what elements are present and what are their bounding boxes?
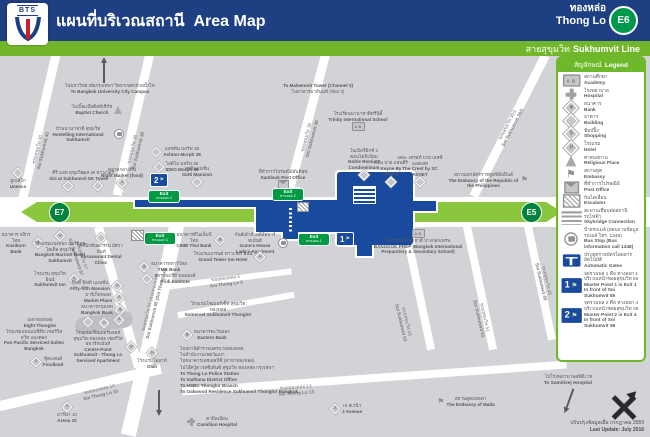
place-name-th: โรงแรมแพนแปซิฟิก เซอร์วิส สวีท แบงคอก [2,329,66,340]
legend-item-post: ที่ทำการไปรษณีย์Post Office [559,181,643,194]
place-name-en: Arena 10 [57,418,77,424]
exit-badge-3: Exitทางออก 3 [144,232,176,245]
building-icon [565,115,576,126]
legend-item-religious: ศาสนสถานReligious Place [559,154,643,167]
building-icon [94,182,102,190]
building-icon [387,177,395,185]
shopping-icon [115,316,123,324]
place-text: ที่ทำการไปรษณีย์สันติสุขSantisuk Post Of… [258,169,307,180]
muster-icon: 1 [560,277,583,295]
bank-icon [183,330,191,338]
bank-icon [565,102,576,113]
map-place: โรงแรมโซเมอร์เซ็ท สุขุมวิท ทองหล่อSomers… [183,301,253,318]
page-title-en: Area Map [193,13,265,30]
legend-item-bank: ธนาคารBank [559,101,643,114]
legend-label-en: Automatic Gates [584,264,641,270]
arrow-down-icon [156,390,162,416]
place-text: สุทธิแมนชั่นSutti Mansion [182,166,212,177]
exit-number: ทางออก 1 [299,240,329,244]
legend-item-building: อาคารBuilding [559,114,643,127]
place-name-en: TMB Bank [151,267,187,273]
line-name-th: สายสุขุมวิท [526,44,570,54]
place-name-en: Pridi Institute [154,279,195,285]
legend-label-en: Muster Point 1 is Exit 1 In front of Soi… [584,283,641,300]
place-name-th: ที่ทำการไปรษณีย์สันติสุข [258,169,307,175]
place-text: เอท ทองหล่อEight Thonglor [24,317,57,328]
legend-label-en: Academy [584,81,608,87]
place-name-th: คลินิกทันตกรรม อัศวานันท์ [76,243,126,254]
arrow-down-icon [562,388,577,414]
street-label: ซอยสุขุมวิท 30/1Soi Sukhumvit 30/1 [495,105,524,147]
place-name-en: Pan Pacific Serviced Suites Bangkok [2,340,66,351]
legend-icon-cell [558,182,585,194]
map-place: บ้านนานาชาติ สุขุมวิทHostelling Internat… [44,126,124,143]
place-name-en: Bangkok Bank [81,310,113,316]
last-update-th: ปรับปรุงข้อมูลเมื่อ กรกฎาคม 2559 [570,420,644,427]
exit-number: ทางออก 4 [149,197,179,201]
hotel-icon [56,232,64,240]
direction-en: To Oakwood Residence Sukhumvit Thonglor … [180,389,298,395]
place-text: To Maleenont Tower (Channel 3)ไปอาคารมาล… [283,83,353,94]
map-place: โรงแรมแพนแปซิฟิก เซอร์วิส สวีท แบงคอกPan… [2,329,66,351]
place-name-th: ธนาคารทหารไทย [151,261,187,267]
map-place: ไบเบิ้ลแบ๊พติสท์เชิร์ชBaptist Church [60,104,134,115]
place-text: สถานทูตมอลตาThe Embassy of Malta [446,396,494,407]
map-place: สถาบันปรีดี พนมยงค์Pridi Institute [140,273,198,284]
line-name: สายสุขุมวิทSukhumvit Line [526,42,640,56]
legend-icon-cell [558,195,585,209]
page-title-th: แผนที่บริเวณสถานี [56,13,185,30]
building-icon [360,171,368,179]
legend-item-shopping: ช้อปปิ้งShopping [559,128,643,141]
embassy-icon [566,169,576,180]
legend-item-escalator: บันไดเลื่อนEscalator [559,195,643,208]
building-icon [143,274,151,282]
place-name-en: The Embassy of Malta [446,402,494,408]
legend-text: ที่ทำการไปรษณีย์Post Office [584,182,620,193]
place-text: เอส เค ทาวเวอร์SK Tower [82,170,114,181]
map-place [84,317,92,327]
busstop-icon [278,238,288,248]
bank-icon [216,236,224,244]
map-place: เดอะ เครสท์ บาย เอสซี แอสเสทThe Crest by… [397,155,443,187]
place-name-th: สถาบันปรีดี พนมยงค์ [154,273,195,279]
map-place [100,318,108,328]
hospital-icon [187,418,195,426]
skybridge-icon [561,211,581,225]
map-place: สุทธิแมนชั่นSutti Mansion [171,166,223,187]
place-name-en: Sutti Mansion [182,172,212,178]
station-name-en: Thong Lo [556,15,606,28]
place-name-th: ธนาคาร กสิกรไทย [1,232,31,243]
map-place: โรงแรมโอลาห์Olah [131,348,173,369]
muster-icon: 2 [560,306,583,324]
place-name-th: โนเบิลรีมิกซ์ 2 คอนโดมิเนียม [339,148,389,159]
place-name-en: Unesco [10,184,27,190]
exit-badge-1: Exitทางออก 1 [298,233,330,246]
last-update-en: Last Update: July 2016 [570,427,644,434]
legend-icon-cell [558,114,585,128]
place-text: ธนาคารกรุงเทพBangkok Bank [81,304,113,315]
legend-text: ธนาคารBank [584,102,601,113]
place-text: โรงแรมเซ็นเตอร์พอยท์ สุขุมวิท-ทองหล่อ เซ… [72,330,124,363]
legend-label-en: Post Office [584,188,620,194]
directions-list: ไปสถานีตำรวจนครบาลทองหล่อไปสำนักงานเขตวั… [180,346,298,396]
place-text: ธนาคารทหารไทยTMB Bank [151,261,187,272]
map-place: ธนาคารซีไอเอ็มบี ไทยCIMB Thai Bank [175,232,225,249]
legend-label-en: Bank [584,108,601,114]
place-name-th: ธนาคารซีไอเอ็มบี ไทย [175,232,213,243]
place-text: สถานเอกอัครราชทูตฟิลิปปินส์The Embassy o… [448,172,519,189]
legend-label-th: จุดรวมพล 2 คือ ทางออก 4 บริเวณหน้าซอยสุข… [584,301,641,312]
map-place: ฟู้ดแลนด์Foodland [26,356,68,367]
legend-text: บันไดเลื่อนEscalator [584,196,607,207]
legend-panel: สัญลักษณ์ Legend สถานศึกษาAcademyโรงพยาบ… [556,56,646,362]
place-name-th: โรงแรม สุขุมวิท อินน์ [33,271,67,282]
hotel-icon [255,252,263,260]
bank-icon [116,305,124,313]
building-icon [84,318,92,326]
place-name-th: ไปมหาวิทยาลัยกรุงเทพฯ วิทยาเขตกล้วยน้ำไท [65,83,155,89]
place-text: อารีน่า 10Arena 10 [57,412,77,423]
place-name-en: J Avenue [342,409,362,415]
place-name-en: Kasikorn Bank [1,243,31,254]
muster-point-2: 2 [150,173,168,187]
legend-title-en: Legend [605,62,628,69]
station-name: ทองหล่อ Thong Lo [556,3,606,27]
map-place: โรงแรมแกรนด์ ทาวเวอร์ อินน์Grand Tower I… [187,251,271,262]
map-place: แอชตัน มอร์ฟ 38Ashton Morph 38 [144,146,208,157]
busstop-icon [564,232,578,246]
place-name-en: Foodland [43,362,64,368]
busstop-icon [114,129,124,139]
building-icon [152,147,160,155]
legend-label-en: Shopping [584,134,606,140]
legend-label-en: Religious Place [584,161,619,167]
page-title: แผนที่บริเวณสถานี Area Map [56,9,266,34]
map-place: ยูเนสโกUnesco [0,168,39,189]
place-text: มาร์เก็ตเพลสMarket Place [84,292,112,303]
hotel-icon [565,142,576,153]
escalator-icon [297,202,309,212]
place-name-th: ฟิฟตี้ ฟิฟท์ แมนชั่น [70,280,110,286]
map-place: อารีน่า 10Arena 10 [48,402,86,423]
map-place [115,315,123,325]
building-icon [416,178,424,186]
legend-label-th: สถานทูต [584,169,605,175]
place-name-en: Market Place [84,298,112,304]
legend-icon-cell [558,169,585,180]
place-name-th: มาร์เก็ตเพลส [84,292,112,298]
map-place: โรงแรมเซ็นเตอร์พอยท์ สุขุมวิท-ทองหล่อ เซ… [72,330,136,363]
map-place: ธนาคารทหารไทยTMB Bank [137,261,189,272]
bts-logo-text: BTS [17,5,38,16]
hotel-icon [113,281,121,289]
place-name-th: โรงแรมโอลาห์ [137,358,166,364]
arrow-up-icon [101,57,107,83]
building-icon [14,169,22,177]
place-name-en: Ashton Morph 38 [163,152,201,158]
legend-label-en: Skybridge Connection [584,220,641,226]
academy-icon [412,229,425,238]
place-name-en: Assavanant Dental Clinic [76,254,126,265]
legend-text: จุดรวมพล 2 คือ ทางออก 4 บริเวณหน้าซอยสุข… [584,301,641,329]
legend-label-en: Hotel [584,148,600,154]
place-name-th: เดอะ เครสท์ บาย เอสซี แอสเสท [397,155,443,166]
place-name-th: โรงเรียนนานาชาติทรินิตี้ [328,111,387,117]
place-name-en: Grand Tower Inn Hotel [193,257,252,263]
exit-badge-4: Exitทางออก 4 [148,190,180,203]
hotel-icon [100,319,108,327]
shopping-icon [331,404,339,412]
legend-label-th: ธนาคาร [584,102,601,108]
legend-header: สัญลักษณ์ Legend [558,58,644,72]
muster-point-1: 1 [336,232,354,246]
place-text: โรงเรียนนานาชาติ บางกอกเพรพBANGKOK PREP … [362,238,474,255]
post-icon [564,182,579,194]
legend-text: ช้อปปิ้งShopping [584,129,606,140]
place-name-th: ยูเนสโก [10,178,27,184]
legend-text: โรงแรมHotel [584,142,600,153]
place-name-th: โรงแรมเซ็นเตอร์พอยท์ สุขุมวิท-ทองหล่อ เซ… [72,330,124,347]
place-text: โรงแรมแกรนด์ ทาวเวอร์ อินน์Grand Tower I… [193,251,252,262]
legend-label-th: จุดรวมพล 1 คือ ทางออก 1 บริเวณหน้าซอยสุข… [584,272,641,283]
map-place: เจ อเวนิวJ Avenue [325,403,367,414]
place-name-en: Eastern Bank [194,335,230,341]
exit-number: ทางออก 2 [273,195,303,199]
legend-text: สถานทูตEmbassy [584,169,605,180]
place-name-en: Sukhumvit Inn [33,282,67,288]
legend-title-th: สัญลักษณ์ [574,60,602,70]
legend-icon-cell [558,75,585,87]
place-text: โรงแรมโอลาห์Olah [137,358,166,369]
place-name-th: เอส เค ทาวเวอร์ [82,170,114,176]
legend-icon-cell [558,89,585,100]
station-e5-badge: E5 [521,202,542,223]
hospital-icon [566,89,577,100]
place-name-th: เอท ทองหล่อ [24,317,57,323]
legend-icon-cell [558,156,585,167]
map-place: คามิลเลี่ยนCamillian Hospital [186,416,238,427]
legend-icon-cell [558,211,585,225]
legend-text: ประตูตรวจบัตรโดยสารอัตโนมัติAutomatic Ga… [584,253,641,270]
religious-icon [114,106,122,114]
legend-item-hotel: โรงแรมHotel [559,141,643,154]
station-e7-badge: E7 [49,202,70,223]
place-name-en: Olah [137,364,166,370]
legend-text: โรงพยาบาลHospital [584,89,609,100]
legend-item-gates: ประตูตรวจบัตรโดยสารอัตโนมัติAutomatic Ga… [559,251,643,270]
place-text: ยูเนสโกUnesco [10,178,27,189]
place-name-en: Camillian Hospital [197,422,237,428]
legend-label-en: Hospital [584,94,609,100]
legend-label-en: Embassy [584,175,605,181]
shopping-icon [63,403,71,411]
place-name-en: SK Tower [82,176,114,182]
legend-label-th: สถานศึกษา [584,75,608,81]
line-name-en: Sukhumvit Line [573,44,640,54]
place-name-en: Baptist Church [72,110,113,116]
legend-text: สถานศึกษาAcademy [584,75,608,86]
shopping-icon [565,129,576,140]
street-label: ซอยสุขุมวิท 53Soi Sukhumvit 53 [394,302,413,342]
place-name-en: The Embassy of the Republic of the Phili… [448,178,519,189]
place-text: โรงแรมแพนแปซิฟิก เซอร์วิส สวีท แบงคอกPan… [2,329,66,351]
place-name-en: BANGKOK PREP (Bangkok International Prep… [362,244,474,255]
legend-label-th: สะพานเชื่อมต่อสถานีรถไฟฟ้า [584,209,641,220]
building-icon [154,162,162,170]
place-text: เดอะ เครสท์ บาย เอสซี แอสเสทThe Crest by… [397,155,443,177]
place-text: ฟู้ดแลนด์Foodland [43,356,64,367]
place-name-en: Centre Point Sukhumvit - Thong Lo Servic… [72,347,124,364]
map-place: คลินิกทันตกรรม อัศวานันท์Assavanant Dent… [76,233,126,265]
legend-text: จุดรวมพล 1 คือ ทางออก 1 บริเวณหน้าซอยสุข… [584,272,641,300]
place-name-en: CIMB Thai Bank [175,243,213,249]
legend-item-academy: สถานศึกษาAcademy [559,74,643,87]
place-name-th: สุทธิแมนชั่น [182,166,212,172]
map-place: มาร์เก็ตเพลสMarket Place [81,292,127,303]
place-text: ธนาคาร กสิกรไทยKasikorn Bank [1,232,31,254]
place-text: ธนาคารซีไอเอ็มบี ไทยCIMB Thai Bank [175,232,213,249]
samitivej-direction: ไปโรงพยาบาลสมิติเวช To Samitivej Hospita… [488,375,592,387]
shopping-icon [118,179,126,187]
legend-text: สะพานเชื่อมต่อสถานีรถไฟฟ้าSkybridge Conn… [584,209,641,226]
legend-item-skybridge: สะพานเชื่อมต่อสถานีรถไฟฟ้าSkybridge Conn… [559,208,643,227]
building-icon [193,178,201,186]
shopping-icon [115,293,123,301]
place-name-en: Fifty-fifth Mansion [70,286,110,292]
embassy-icon [521,176,528,184]
legend-item-muster2: 2จุดรวมพล 2 คือ ทางออก 4 บริเวณหน้าซอยสุ… [559,300,643,330]
place-text: โรงแรมโซเมอร์เซ็ท สุขุมวิท ทองหล่อSomers… [183,301,253,318]
place-name-th: กันส์เฮ้าส์ เลดี้ส์อพาร์ทเม้นท์ [234,232,276,243]
map-place: ธนาคารกรุงเทพBangkok Bank [80,304,126,315]
religious-icon [566,156,577,167]
legend-icon-cell [558,101,585,115]
station-stairs [289,208,292,234]
place-text: ไบเบิ้ลแบ๊พติสท์เชิร์ชBaptist Church [72,104,113,115]
legend-text: ป้ายรถเมล์ (สอบถามข้อมูลรถเมล์ โทร. 1348… [584,228,641,250]
place-name-th: ธนาคารกรุงเทพ [81,304,113,310]
escalator-icon [562,195,580,209]
place-name-th: ฟู้ดแลนด์ [43,356,64,362]
street-label: ซอยทองหล่อ 5Soi Thong Lo 5 [209,274,243,289]
station-code-badge: E6 [609,6,638,35]
place-name-th: ไปอาคารมาลีนนท์ (ช่อง 3) [283,89,353,95]
place-name-th: เจ อเวนิว [342,403,362,409]
place-name-en: Eight Thonglor [24,323,57,329]
place-text: ธนาคารตะวันออกEastern Bank [194,329,230,340]
academy-icon [562,75,580,87]
place-name-th: แอชตัน มอร์ฟ 38 [163,146,201,152]
legend-text: อาคารBuilding [584,115,603,126]
station-name-th: ทองหล่อ [556,3,606,15]
samitivej-en: To Samitivej Hospital [488,381,592,387]
legend-label-th: ประตูตรวจบัตรโดยสารอัตโนมัติ [584,253,641,264]
place-name-th: โรงแรมแกรนด์ ทาวเวอร์ อินน์ [193,251,252,257]
legend-label-en: Bus Stop (Bus information call 1348) [584,239,641,250]
map-place: สถานเอกอัครราชทูตฟิลิปปินส์The Embassy o… [448,172,528,189]
legend-icon-cell: 2 [558,306,585,324]
place-text: คลินิกทันตกรรม อัศวานันท์Assavanant Dent… [76,243,126,265]
place-name-en: To Maleenont Tower (Channel 3) [283,83,353,89]
place-text: เจ อเวนิวJ Avenue [342,403,362,414]
legend-label-th: โรงแรม [584,142,600,148]
building-icon [97,234,105,242]
embassy-icon [437,398,444,406]
place-text: บ้านนานาชาติ สุขุมวิทHostelling Internat… [44,126,112,143]
exit-badge-2: Exitทางออก 2 [272,188,304,201]
hotel-icon [148,349,156,357]
place-text: ไปมหาวิทยาลัยกรุงเทพฯ วิทยาเขตกล้วยน้ำไท… [65,83,155,94]
place-text: สถาบันปรีดี พนมยงค์Pridi Institute [154,273,195,284]
legend-icon-cell [558,128,585,142]
skybridge-connection [353,186,376,204]
road-arrow-left [21,202,37,222]
place-name-th: ธนาคารตะวันออก [194,329,230,335]
academy-icon [352,122,365,131]
place-text: โรงแรม สุขุมวิท อินน์Sukhumvit Inn [33,271,67,288]
place-name-th: โรงแรมโซเมอร์เซ็ท สุขุมวิท ทองหล่อ [183,301,253,312]
gates-icon [562,255,580,267]
map-place: โรงเรียนนานาชาติทรินิตี้Trinity Internat… [316,111,400,131]
place-name-en: Somerset Sukhumvit Thonglor [183,312,253,318]
place-text: แอชตัน มอร์ฟ 38Ashton Morph 38 [163,146,201,157]
legend-label-en: Escalator [584,201,607,207]
place-text: คามิลเลี่ยนCamillian Hospital [197,416,237,427]
place-name-th: อารีน่า 10 [57,412,77,418]
map-place: เอส เค ทาวเวอร์SK Tower [79,170,117,191]
legend-icon-cell [558,141,585,155]
legend-icon-cell [558,255,585,267]
station-east-stub [412,201,436,211]
shopping-icon [31,357,39,365]
legend-items: สถานศึกษาAcademyโรงพยาบาลHospitalธนาคารB… [558,72,644,332]
exit-number: ทางออก 3 [145,239,175,243]
legend-icon-cell: 1 [558,277,585,295]
legend-label-th: ป้ายรถเมล์ (สอบถามข้อมูลรถเมล์ โทร. 1348… [584,228,641,239]
map-place: เอท ทองหล่อEight Thonglor [16,317,64,328]
legend-icon-cell [558,232,585,246]
place-name-th: ไบเบิ้ลแบ๊พติสท์เชิร์ช [72,104,113,110]
bank-icon [140,262,148,270]
bts-logo: BTS [7,3,48,45]
map-place: To Maleenont Tower (Channel 3)ไปอาคารมาล… [262,83,374,94]
building-icon [64,182,72,190]
map-place: โรงเรียนนานาชาติ บางกอกเพรพBANGKOK PREP … [362,229,474,255]
legend-text: ศาสนสถานReligious Place [584,156,619,167]
legend-item-hospital: โรงพยาบาลHospital [559,87,643,100]
place-name-en: The Crest by SC ASSET [397,166,443,177]
map-place: ฟิฟตี้ ฟิฟท์ แมนชั่นFifty-fifth Mansion [68,280,124,291]
place-name-th: สถานเอกอัครราชทูตฟิลิปปินส์ [448,172,519,178]
legend-label-en: Muster Point 2 is Exit 4 In front of Soi… [584,313,641,330]
legend-item-muster1: 1จุดรวมพล 1 คือ ทางออก 1 บริเวณหน้าซอยสุ… [559,270,643,300]
legend-item-busstop: ป้ายรถเมล์ (สอบถามข้อมูลรถเมล์ โทร. 1348… [559,227,643,251]
place-name-en: To Bangkok University City Campus [65,89,155,95]
place-text: ฟิฟตี้ ฟิฟท์ แมนชั่นFifty-fifth Mansion [70,280,110,291]
last-update-note: ปรับปรุงข้อมูลเมื่อ กรกฎาคม 2559 Last Up… [570,420,644,433]
legend-label-en: Building [584,121,603,127]
map-place: ธนาคารตะวันออกEastern Bank [177,329,235,340]
place-text: โรงเรียนนานาชาติทรินิตี้Trinity Internat… [328,111,387,122]
map-place: สถานทูตมอลตาThe Embassy of Malta [434,396,498,407]
legend-item-embassy: สถานทูตEmbassy [559,168,643,181]
map-place: ที่ทำการไปรษณีย์สันติสุขSantisuk Post Of… [249,169,317,189]
bts-bird-icon [13,16,43,42]
place-name-en: Hostelling International Sukhumvit [44,132,112,143]
map-place: ไปมหาวิทยาลัยกรุงเทพฯ วิทยาเขตกล้วยน้ำไท… [58,83,162,94]
